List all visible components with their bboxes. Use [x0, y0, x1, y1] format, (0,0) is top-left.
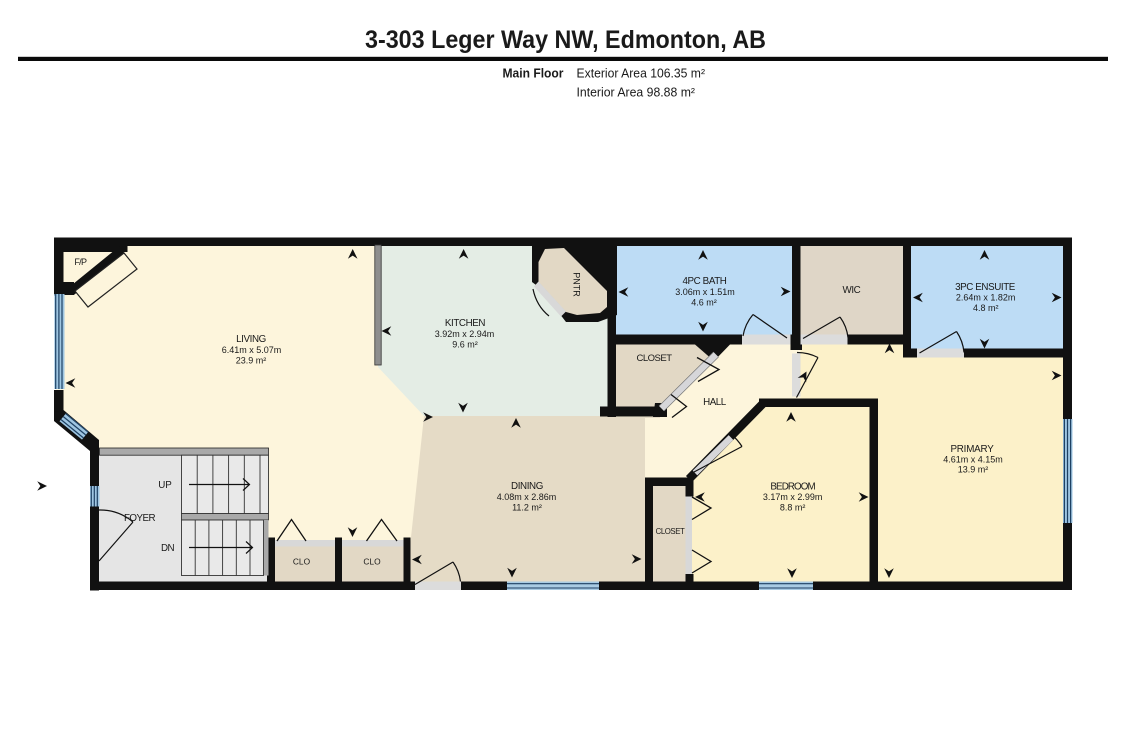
- svg-text:3.06m x 1.51m: 3.06m x 1.51m: [675, 287, 735, 297]
- svg-text:UP: UP: [158, 480, 172, 491]
- svg-text:9.6 m²: 9.6 m²: [452, 339, 478, 349]
- svg-text:8.8 m²: 8.8 m²: [780, 502, 806, 512]
- svg-text:Interior Area 98.88 m²: Interior Area 98.88 m²: [577, 86, 696, 100]
- svg-text:6.41m x 5.07m: 6.41m x 5.07m: [222, 345, 282, 355]
- svg-text:4.8 m²: 4.8 m²: [973, 303, 999, 313]
- svg-text:11.2 m²: 11.2 m²: [512, 502, 542, 512]
- svg-text:Exterior Area 106.35 m²: Exterior Area 106.35 m²: [577, 67, 706, 81]
- svg-text:3.92m x 2.94m: 3.92m x 2.94m: [435, 329, 495, 339]
- svg-text:BEDROOM: BEDROOM: [770, 482, 815, 493]
- svg-text:Main Floor: Main Floor: [503, 67, 564, 81]
- svg-text:4.6 m²: 4.6 m²: [691, 297, 717, 307]
- svg-text:WIC: WIC: [842, 285, 860, 296]
- svg-text:CLOSET: CLOSET: [636, 353, 672, 364]
- svg-text:DN: DN: [161, 543, 174, 554]
- svg-text:13.9 m²: 13.9 m²: [958, 465, 989, 475]
- svg-text:3.17m x 2.99m: 3.17m x 2.99m: [763, 492, 823, 502]
- svg-text:HALL: HALL: [703, 397, 727, 408]
- svg-text:4.61m x 4.15m: 4.61m x 4.15m: [943, 454, 1003, 464]
- svg-text:PNTR: PNTR: [572, 272, 582, 297]
- svg-text:CLO: CLO: [363, 557, 381, 567]
- svg-text:FOYER: FOYER: [124, 513, 155, 524]
- svg-text:CLO: CLO: [293, 557, 311, 567]
- svg-text:4PC BATH: 4PC BATH: [683, 276, 727, 287]
- svg-text:LIVING: LIVING: [236, 334, 266, 345]
- svg-text:DINING: DINING: [511, 481, 543, 492]
- svg-text:KITCHEN: KITCHEN: [445, 318, 486, 329]
- svg-text:3-303 Leger Way NW, Edmonton,: 3-303 Leger Way NW, Edmonton, AB: [365, 26, 766, 54]
- svg-text:23.9 m²: 23.9 m²: [236, 355, 267, 365]
- svg-text:3PC ENSUITE: 3PC ENSUITE: [955, 282, 1016, 293]
- svg-text:2.64m x 1.82m: 2.64m x 1.82m: [956, 293, 1016, 303]
- svg-text:4.08m x 2.86m: 4.08m x 2.86m: [497, 492, 557, 502]
- svg-text:CLOSET: CLOSET: [656, 527, 685, 536]
- svg-text:F/P: F/P: [74, 257, 87, 267]
